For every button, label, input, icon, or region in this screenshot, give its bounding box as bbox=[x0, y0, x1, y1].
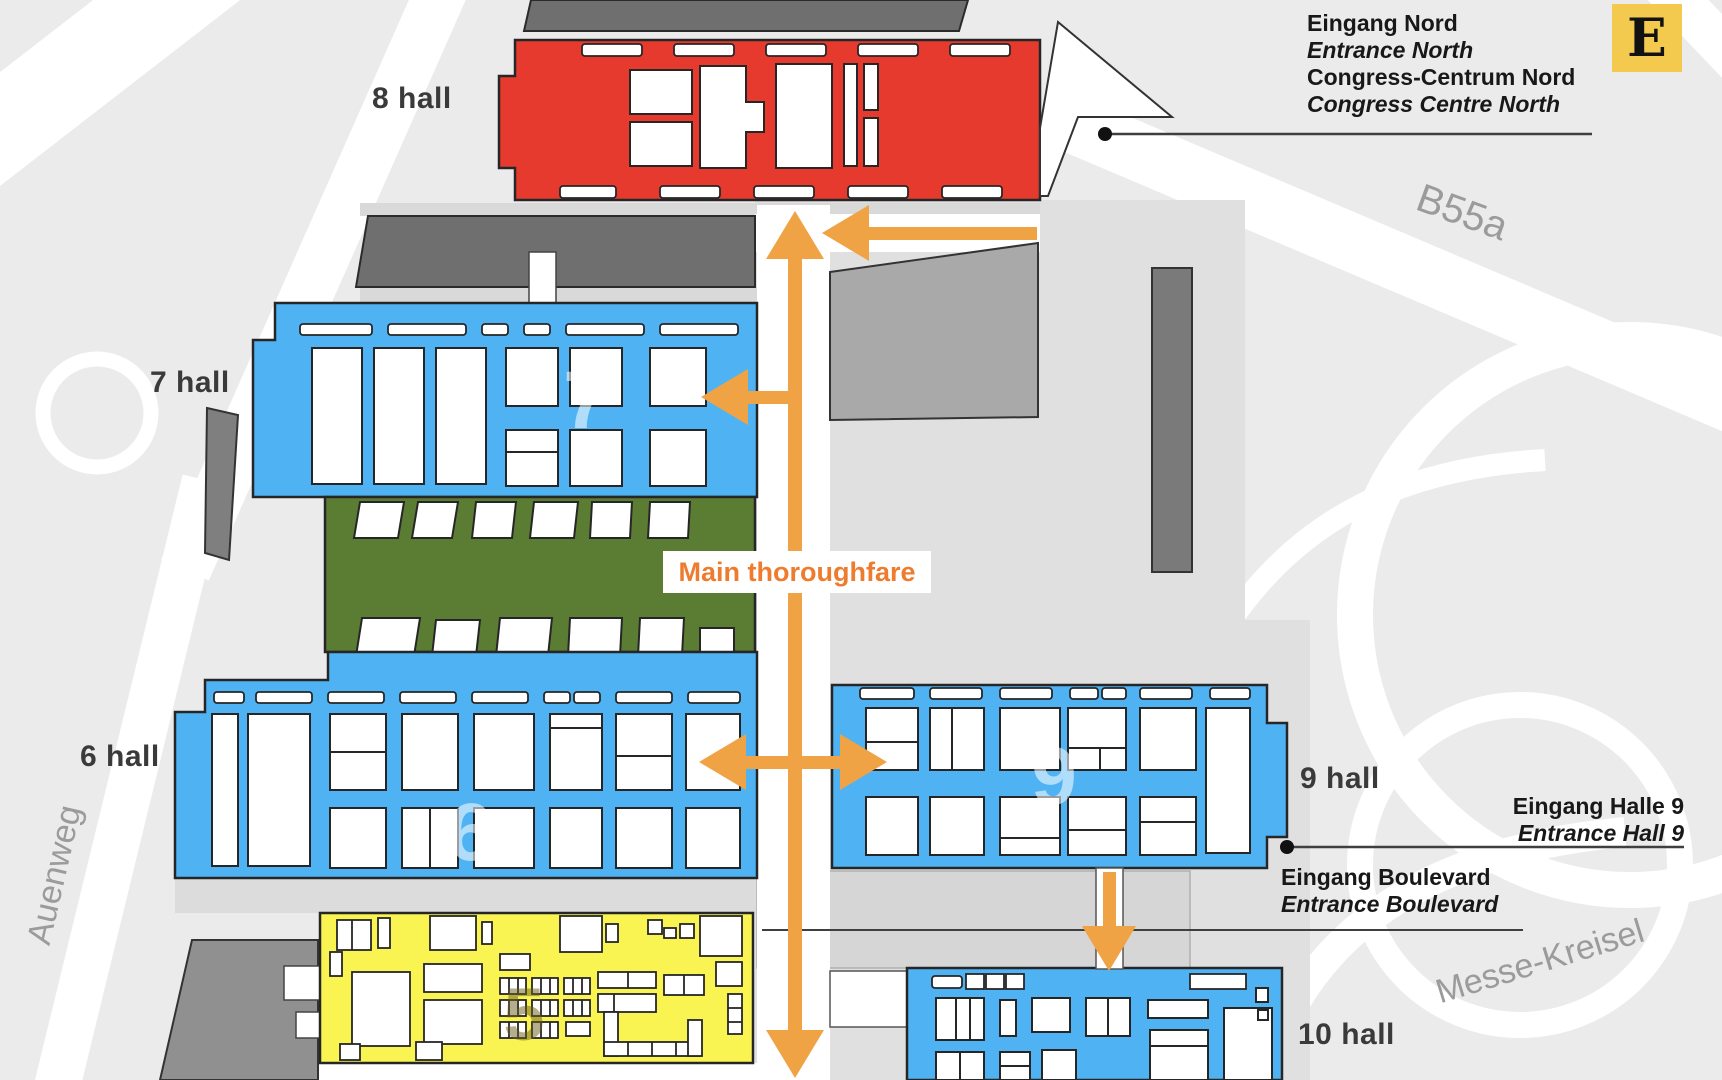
entrance-north-annotation: Eingang Nord Entrance North Congress-Cen… bbox=[1307, 10, 1575, 118]
building-north-strip bbox=[524, 0, 968, 31]
building-southwest bbox=[160, 940, 318, 1080]
main-thoroughfare-label: Main thoroughfare bbox=[663, 551, 931, 593]
hall-6-number: 6 bbox=[447, 787, 493, 878]
entrance-hall9-line-de: Eingang Halle 9 bbox=[1513, 793, 1684, 820]
congress-centre-line-de: Congress-Centrum Nord bbox=[1307, 64, 1575, 91]
map-canvas: 7 6 9 5 bbox=[0, 0, 1722, 1080]
entrance-north-line-en: Entrance North bbox=[1307, 37, 1575, 64]
entrance-boulevard-line-en: Entrance Boulevard bbox=[1281, 891, 1498, 918]
entrance-boulevard-annotation: Eingang Boulevard Entrance Boulevard bbox=[1281, 864, 1498, 918]
building-tall-east bbox=[1152, 268, 1192, 572]
entrance-north-line-de: Eingang Nord bbox=[1307, 10, 1575, 37]
hall-7-number: 7 bbox=[563, 355, 609, 446]
building-trapezoid-east bbox=[830, 243, 1038, 420]
hall-9-number: 9 bbox=[1031, 731, 1077, 822]
bridge-hall5-west1 bbox=[284, 966, 324, 1000]
hall-9-label: 9 hall bbox=[1300, 762, 1380, 796]
gap-strip-south bbox=[175, 878, 757, 913]
entrance-hall9-line-en: Entrance Hall 9 bbox=[1513, 820, 1684, 847]
hall-10-shape bbox=[907, 968, 1282, 1080]
congress-centre-line-en: Congress Centre North bbox=[1307, 91, 1575, 118]
hall-7-shape bbox=[253, 303, 757, 497]
hall-10-label: 10 hall bbox=[1298, 1018, 1395, 1052]
south-road bbox=[300, 1063, 757, 1080]
e-logo-badge: E bbox=[1612, 4, 1682, 72]
entrance-north-dot bbox=[1098, 127, 1112, 141]
hall-7-label: 7 hall bbox=[150, 366, 230, 400]
entrance-hall9-annotation: Eingang Halle 9 Entrance Hall 9 bbox=[1513, 793, 1684, 847]
hall10-west-annex bbox=[830, 971, 907, 1027]
hall-6-label: 6 hall bbox=[80, 740, 160, 774]
entrance-hall9-dot bbox=[1280, 840, 1294, 854]
hall-5-number: 5 bbox=[503, 973, 544, 1056]
fairground-map: 7 6 9 5 8 hall 7 hall 6 hall 9 hall 10 h… bbox=[0, 0, 1722, 1080]
hall-8-shape bbox=[499, 40, 1040, 200]
building-sliver-west bbox=[205, 408, 238, 560]
entrance-boulevard-line-de: Eingang Boulevard bbox=[1281, 864, 1498, 891]
hall-8-label: 8 hall bbox=[372, 82, 452, 116]
